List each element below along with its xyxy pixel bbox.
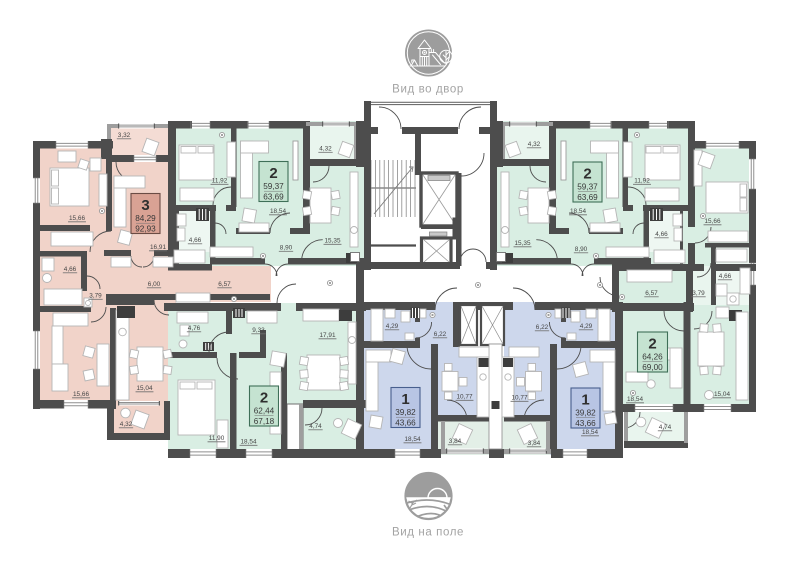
svg-text:15,35: 15,35 bbox=[325, 238, 341, 245]
svg-text:6,22: 6,22 bbox=[536, 324, 549, 331]
svg-text:3,84: 3,84 bbox=[528, 440, 541, 447]
svg-text:10,77: 10,77 bbox=[457, 394, 473, 401]
svg-text:39,82: 39,82 bbox=[395, 408, 416, 417]
svg-text:43,66: 43,66 bbox=[395, 419, 416, 428]
svg-text:63,69: 63,69 bbox=[577, 193, 598, 202]
svg-text:4,74: 4,74 bbox=[309, 423, 322, 430]
svg-text:62,44: 62,44 bbox=[254, 407, 275, 416]
svg-text:16,91: 16,91 bbox=[150, 244, 166, 251]
svg-text:69,00: 69,00 bbox=[642, 363, 663, 372]
svg-text:4,76: 4,76 bbox=[188, 325, 201, 332]
svg-text:15,35: 15,35 bbox=[515, 240, 531, 247]
svg-text:67,18: 67,18 bbox=[254, 417, 275, 426]
svg-text:18,54: 18,54 bbox=[241, 439, 257, 446]
svg-text:8,90: 8,90 bbox=[280, 245, 293, 252]
svg-text:64,26: 64,26 bbox=[642, 353, 663, 362]
svg-text:3: 3 bbox=[141, 197, 149, 214]
svg-text:84,29: 84,29 bbox=[135, 214, 156, 223]
svg-text:6,57: 6,57 bbox=[218, 281, 231, 288]
svg-text:11,90: 11,90 bbox=[209, 435, 225, 442]
svg-text:4,32: 4,32 bbox=[120, 421, 133, 428]
svg-text:3,32: 3,32 bbox=[118, 132, 131, 139]
svg-text:63,69: 63,69 bbox=[263, 193, 284, 202]
svg-text:3,79: 3,79 bbox=[692, 290, 705, 297]
svg-text:18,54: 18,54 bbox=[627, 396, 643, 403]
svg-text:43,66: 43,66 bbox=[575, 419, 596, 428]
svg-text:15,04: 15,04 bbox=[137, 385, 153, 392]
svg-text:4,29: 4,29 bbox=[386, 323, 399, 330]
svg-text:15,66: 15,66 bbox=[705, 218, 721, 225]
svg-text:4,66: 4,66 bbox=[64, 266, 77, 273]
svg-text:6,57: 6,57 bbox=[645, 290, 658, 297]
svg-text:Вид на поле: Вид на поле bbox=[392, 527, 464, 539]
svg-text:10,77: 10,77 bbox=[512, 395, 528, 402]
svg-text:3,79: 3,79 bbox=[89, 293, 102, 300]
svg-text:4,66: 4,66 bbox=[719, 273, 732, 280]
svg-text:59,37: 59,37 bbox=[263, 182, 284, 191]
svg-text:3,84: 3,84 bbox=[449, 438, 462, 445]
svg-text:17,91: 17,91 bbox=[320, 332, 336, 339]
svg-text:6,22: 6,22 bbox=[434, 331, 447, 338]
svg-text:18,54: 18,54 bbox=[405, 436, 421, 443]
svg-text:2: 2 bbox=[583, 166, 591, 183]
svg-text:39,82: 39,82 bbox=[575, 409, 596, 418]
svg-text:11,92: 11,92 bbox=[212, 178, 228, 185]
svg-text:1: 1 bbox=[581, 392, 589, 409]
svg-text:4,29: 4,29 bbox=[580, 323, 593, 330]
svg-text:59,37: 59,37 bbox=[577, 183, 598, 192]
svg-text:15,66: 15,66 bbox=[69, 215, 85, 222]
svg-text:4,32: 4,32 bbox=[319, 146, 332, 153]
svg-text:18,54: 18,54 bbox=[570, 208, 586, 215]
svg-text:4,32: 4,32 bbox=[528, 141, 541, 148]
svg-text:15,04: 15,04 bbox=[714, 391, 730, 398]
svg-text:18,54: 18,54 bbox=[270, 208, 286, 215]
svg-text:92,93: 92,93 bbox=[135, 225, 156, 234]
svg-text:2: 2 bbox=[260, 390, 268, 407]
svg-text:4,66: 4,66 bbox=[189, 237, 202, 244]
svg-text:4,74: 4,74 bbox=[659, 424, 672, 431]
svg-text:2: 2 bbox=[269, 165, 277, 182]
svg-text:11,92: 11,92 bbox=[634, 178, 650, 185]
svg-text:18,54: 18,54 bbox=[582, 429, 598, 436]
svg-text:6,00: 6,00 bbox=[148, 281, 161, 288]
svg-text:Вид во двор: Вид во двор bbox=[392, 84, 464, 96]
svg-text:15,66: 15,66 bbox=[73, 391, 89, 398]
svg-text:8,90: 8,90 bbox=[575, 246, 588, 253]
svg-text:1: 1 bbox=[401, 391, 409, 408]
svg-text:9,33: 9,33 bbox=[252, 327, 265, 334]
svg-text:2: 2 bbox=[648, 336, 656, 353]
svg-text:4,66: 4,66 bbox=[655, 231, 668, 238]
